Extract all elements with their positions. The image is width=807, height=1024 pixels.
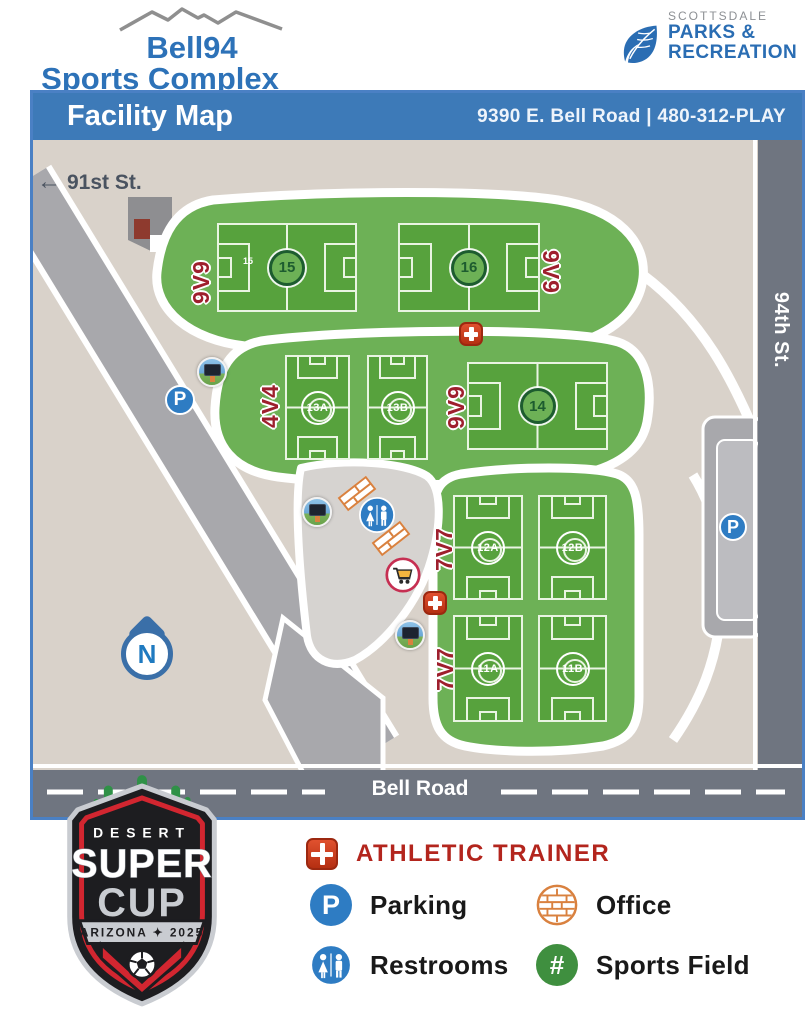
restrooms-icon bbox=[310, 944, 352, 986]
restrooms-icon bbox=[359, 497, 395, 533]
field-14: 14 bbox=[467, 362, 608, 450]
mountain-icon bbox=[116, 4, 286, 32]
legend-restrooms: Restrooms bbox=[310, 944, 509, 986]
map-banner: Facility Map 9390 E. Bell Road | 480-312… bbox=[33, 93, 802, 140]
field-15-small-label: 15 bbox=[243, 256, 253, 266]
field-13a: 13A bbox=[285, 355, 350, 460]
leaf-icon bbox=[616, 22, 662, 68]
badge-arizona-text: ARIZONA ✦ 2025 bbox=[80, 926, 204, 940]
field-marking bbox=[217, 243, 250, 292]
concessions-cart-icon bbox=[385, 557, 421, 593]
field-13b: 13B bbox=[367, 355, 428, 460]
field-marking bbox=[324, 243, 357, 292]
office-icon bbox=[536, 884, 578, 926]
field-11a: 11A bbox=[453, 615, 523, 722]
street-label-94th: 94th St. bbox=[762, 285, 792, 375]
group-label-9v9-field14: 9V9 bbox=[444, 377, 468, 437]
facility-map: Facility Map 9390 E. Bell Road | 480-312… bbox=[30, 90, 805, 820]
badge-super-text: SUPER bbox=[71, 842, 212, 886]
athletic-trainer-icon bbox=[459, 322, 483, 346]
athletic-trainer-icon bbox=[306, 838, 338, 870]
map-area: ←91st St. 94th St. Bell Road 9V9 9V9 4V4… bbox=[33, 140, 802, 817]
map-title: Facility Map bbox=[67, 100, 233, 133]
field-16-label: 16 bbox=[451, 250, 487, 286]
left-arrow-icon: ← bbox=[37, 168, 61, 195]
field-marking bbox=[575, 382, 609, 431]
field-marking bbox=[466, 576, 510, 600]
field-12a: 12A bbox=[453, 495, 523, 600]
field-15: 15 15 bbox=[217, 223, 357, 312]
recreation-label: RECREATION bbox=[668, 43, 796, 63]
field-12b: 12B bbox=[538, 495, 607, 600]
legend-athletic-trainer-label: ATHLETIC TRAINER bbox=[356, 840, 610, 868]
scoreboard-icon bbox=[197, 357, 227, 387]
group-label-9v9-field15: 9V9 bbox=[189, 252, 213, 312]
group-label-4v4: 4V4 bbox=[258, 376, 282, 436]
parking-icon: P bbox=[719, 513, 747, 541]
field-13b-label: 13B bbox=[381, 391, 415, 425]
legend-sports-field: # Sports Field bbox=[536, 944, 750, 986]
street-label-bell-road: Bell Road bbox=[345, 777, 495, 801]
athletic-trainer-icon bbox=[423, 591, 447, 615]
facility-map-flyer: Bell94 Sports Complex SCOTTSDALE PARKS &… bbox=[0, 0, 807, 1024]
field-marking bbox=[551, 615, 594, 640]
street-label-91st: ←91st St. bbox=[37, 168, 142, 196]
scoreboard-icon bbox=[302, 497, 332, 527]
bell94-logo-line1: Bell94 bbox=[28, 32, 292, 63]
field-marking bbox=[551, 495, 594, 519]
field-11b-label: 11B bbox=[556, 652, 590, 686]
badge-desert-text: DESERT bbox=[93, 825, 191, 841]
field-14-label: 14 bbox=[520, 388, 556, 424]
north-label: N bbox=[138, 639, 157, 670]
field-12a-label: 12A bbox=[471, 531, 505, 565]
desert-super-cup-badge: DESERT SUPER CUP ARIZONA ✦ 2025 bbox=[36, 770, 248, 1016]
legend-parking-label: Parking bbox=[370, 890, 467, 921]
legend-parking: P Parking bbox=[310, 884, 467, 926]
north-compass: N bbox=[119, 618, 175, 680]
field-marking bbox=[466, 615, 510, 640]
compass-circle: N bbox=[121, 628, 173, 680]
parking-icon: P bbox=[310, 884, 352, 926]
parks-label: PARKS & bbox=[668, 23, 796, 43]
field-12b-label: 12B bbox=[556, 531, 590, 565]
badge-cup-text: CUP bbox=[97, 881, 187, 925]
field-15-label: 15 bbox=[269, 250, 305, 286]
field-13a-label: 13A bbox=[301, 391, 335, 425]
field-11a-label: 11A bbox=[471, 652, 505, 686]
field-marking bbox=[551, 697, 594, 722]
legend-office-label: Office bbox=[596, 890, 671, 921]
parking-icon: P bbox=[165, 385, 195, 415]
scoreboard-icon bbox=[395, 620, 425, 650]
field-marking bbox=[466, 495, 510, 519]
field-marking bbox=[297, 355, 337, 379]
bell94-logo: Bell94 Sports Complex bbox=[28, 4, 292, 96]
sports-field-icon: # bbox=[536, 944, 578, 986]
legend-office: Office bbox=[536, 884, 671, 926]
field-16: 16 bbox=[398, 223, 540, 312]
field-marking bbox=[297, 436, 337, 460]
legend-athletic-trainer: ATHLETIC TRAINER bbox=[306, 838, 610, 870]
field-marking bbox=[467, 382, 501, 431]
scottsdale-parks-logo: SCOTTSDALE PARKS & RECREATION bbox=[616, 10, 796, 62]
field-marking bbox=[379, 355, 417, 379]
field-marking bbox=[466, 697, 510, 722]
legend-sports-field-label: Sports Field bbox=[596, 950, 750, 981]
group-label-9v9-field16: 9V9 bbox=[539, 242, 563, 302]
map-address: 9390 E. Bell Road | 480-312-PLAY bbox=[477, 106, 786, 128]
field-marking bbox=[398, 243, 432, 292]
legend-restrooms-label: Restrooms bbox=[370, 950, 509, 981]
field-marking bbox=[506, 243, 540, 292]
field-11b: 11B bbox=[538, 615, 607, 722]
field-marking bbox=[379, 436, 417, 460]
field-marking bbox=[551, 576, 594, 600]
